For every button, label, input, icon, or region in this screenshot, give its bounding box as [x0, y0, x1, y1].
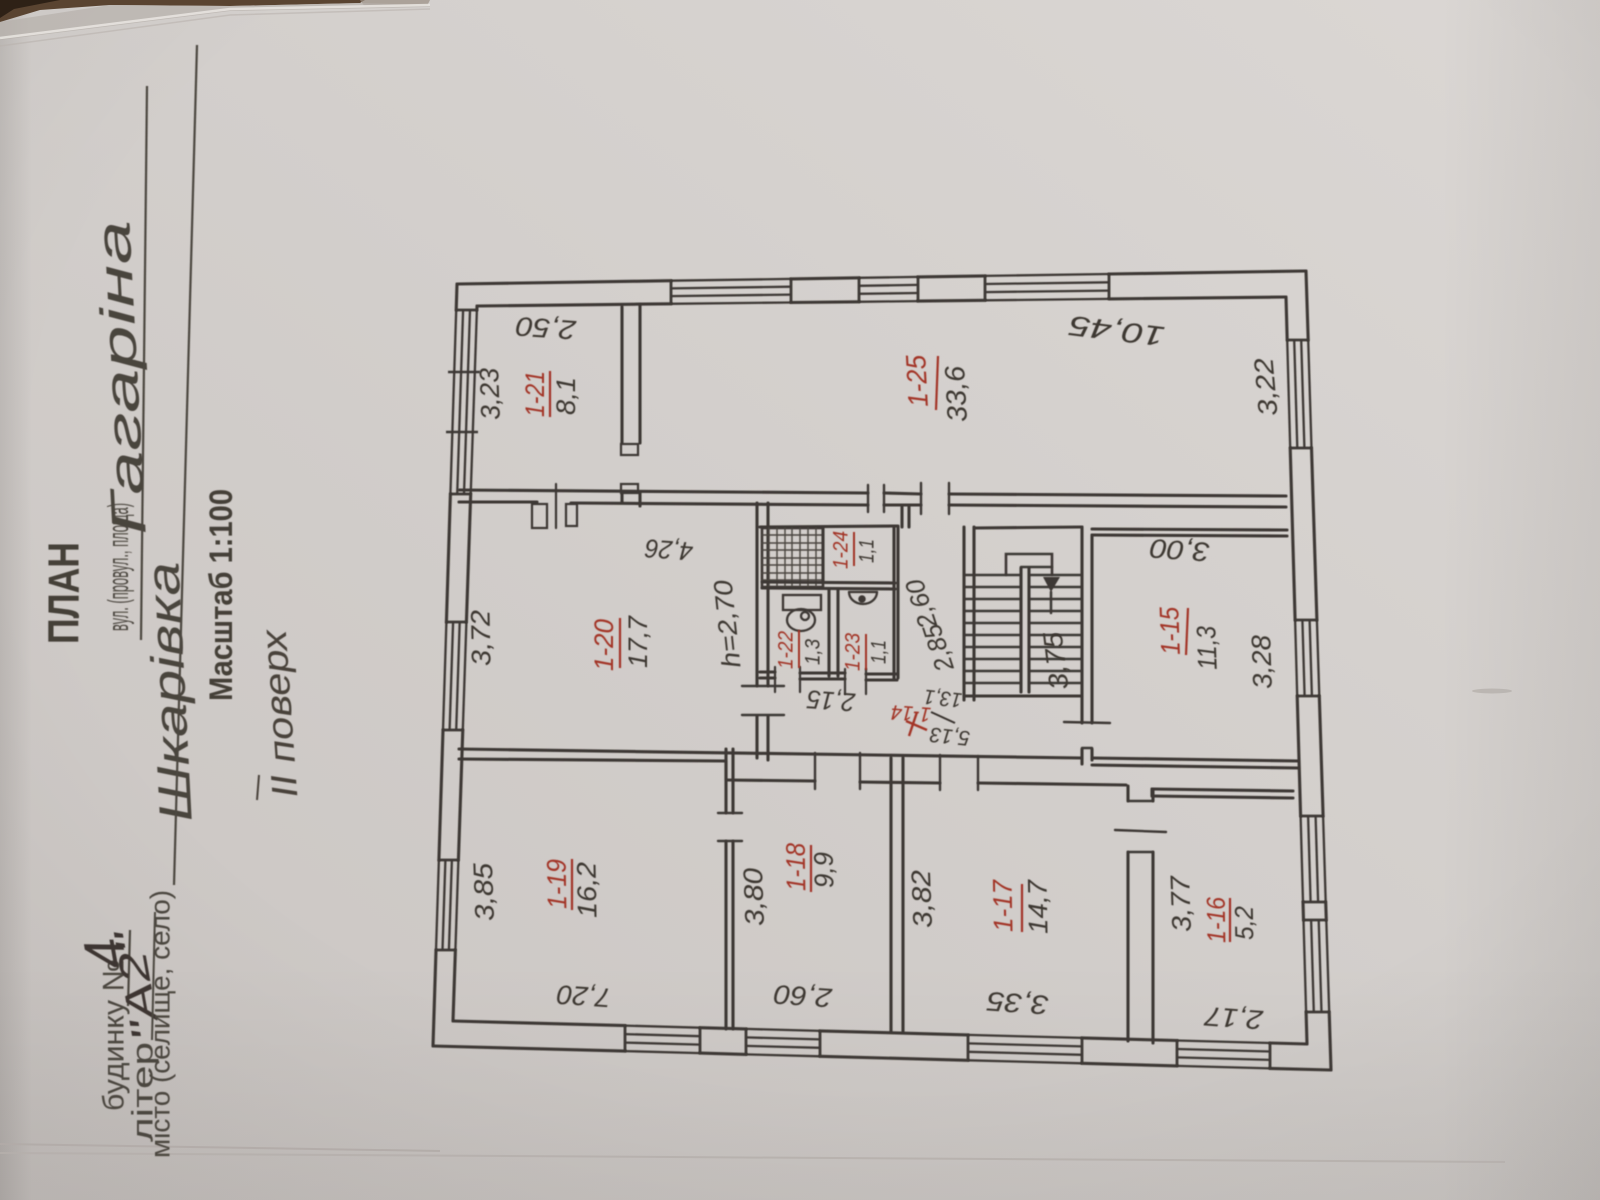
svg-text:1,1: 1,1 [868, 640, 891, 664]
svg-text:3,35: 3,35 [985, 986, 1050, 1020]
svg-text:1-22: 1-22 [775, 631, 798, 669]
svg-text:7,20: 7,20 [556, 979, 612, 1013]
svg-text:2,60: 2,60 [773, 979, 834, 1013]
svg-text:3,00: 3,00 [1149, 533, 1211, 567]
svg-text:ПЛАН: ПЛАН [40, 542, 89, 644]
svg-text:1-24: 1-24 [830, 531, 853, 569]
svg-text:16,2: 16,2 [572, 862, 603, 919]
svg-text:3,23: 3,23 [474, 367, 506, 420]
svg-text:2,15: 2,15 [806, 684, 857, 717]
svg-text:3,28: 3,28 [1246, 634, 1278, 689]
svg-text:місто (селище, село): місто (селище, село) [145, 890, 176, 1158]
svg-text:1-23: 1-23 [842, 633, 865, 671]
svg-text:3,72: 3,72 [466, 610, 497, 667]
svg-text:1-15: 1-15 [1154, 606, 1186, 656]
svg-text:1-16: 1-16 [1201, 896, 1232, 943]
svg-text:2,17: 2,17 [1203, 1001, 1265, 1035]
svg-text:1-25: 1-25 [900, 354, 934, 408]
svg-text:3,77: 3,77 [1165, 874, 1197, 932]
svg-text:5,13: 5,13 [929, 722, 971, 749]
svg-text:1-20: 1-20 [589, 619, 619, 671]
svg-text:3,80: 3,80 [738, 867, 770, 926]
svg-text:33,6: 33,6 [939, 365, 973, 423]
svg-text:3,22: 3,22 [1249, 357, 1284, 417]
svg-text:1-17: 1-17 [988, 879, 1019, 932]
svg-text:13,1: 13,1 [923, 685, 963, 712]
svg-text:8,1: 8,1 [551, 377, 581, 415]
svg-text:1-19: 1-19 [542, 859, 573, 910]
svg-text:1,3: 1,3 [802, 639, 825, 665]
svg-text:1-21: 1-21 [520, 371, 550, 417]
svg-text:14,7: 14,7 [1023, 879, 1054, 935]
svg-text:4,26: 4,26 [644, 533, 694, 566]
svg-text:2,50: 2,50 [515, 311, 578, 345]
svg-text:1,1: 1,1 [856, 539, 879, 563]
svg-text:1-18: 1-18 [781, 843, 812, 892]
svg-text:11,3: 11,3 [1191, 625, 1223, 670]
svg-text:5,2: 5,2 [1229, 905, 1260, 940]
svg-text:9,9: 9,9 [809, 852, 840, 889]
svg-text:17,7: 17,7 [623, 615, 653, 668]
svg-text:3,85: 3,85 [468, 861, 500, 921]
svg-text:Масштаб 1:100: Масштаб 1:100 [203, 489, 239, 701]
svg-text:3,82: 3,82 [906, 869, 938, 928]
